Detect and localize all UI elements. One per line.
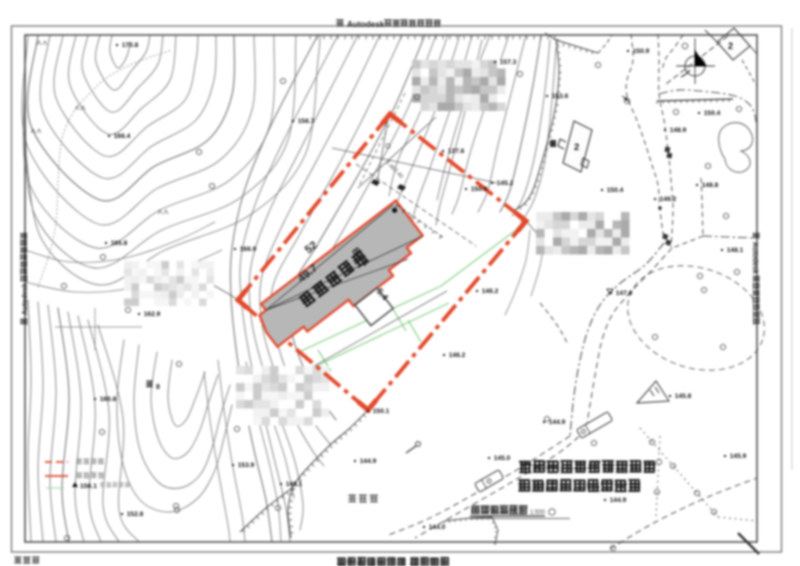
svg-text:153.6: 153.6: [552, 93, 569, 100]
svg-text:156.1: 156.1: [80, 483, 97, 490]
svg-text:148.1: 148.1: [727, 247, 744, 254]
svg-text:148.1: 148.1: [286, 481, 303, 488]
svg-text:150.4: 150.4: [704, 110, 721, 117]
svg-text:145.0: 145.0: [494, 455, 511, 462]
svg-text:8: 8: [156, 384, 160, 391]
svg-text:137.6: 137.6: [448, 148, 465, 155]
svg-text:157.3: 157.3: [500, 59, 517, 66]
svg-text:144.9: 144.9: [610, 497, 627, 504]
svg-text:150.1: 150.1: [373, 408, 390, 415]
svg-text:144.0: 144.0: [429, 524, 446, 531]
svg-text:145.8: 145.8: [675, 393, 692, 400]
svg-text:165.8: 165.8: [111, 240, 128, 247]
svg-text:144.9: 144.9: [360, 458, 377, 465]
svg-text:153.9: 153.9: [238, 462, 255, 469]
svg-text:144.9: 144.9: [549, 419, 566, 426]
svg-text:150.9: 150.9: [633, 48, 650, 55]
svg-text:156.7: 156.7: [298, 118, 315, 125]
svg-text:146.2: 146.2: [449, 352, 466, 359]
svg-text:166.9: 166.9: [240, 246, 257, 253]
svg-text:Autodesk: Autodesk: [751, 242, 758, 274]
svg-text:147.0: 147.0: [616, 290, 633, 297]
svg-text:1:500: 1:500: [530, 510, 546, 516]
svg-text:2: 2: [728, 41, 733, 51]
svg-text:150.6: 150.6: [471, 186, 488, 193]
svg-text:148.9: 148.9: [670, 127, 687, 134]
svg-text:150.4: 150.4: [607, 187, 624, 194]
svg-text:146.2: 146.2: [660, 196, 677, 203]
svg-text:2: 2: [574, 142, 579, 153]
svg-text:170.8: 170.8: [122, 42, 139, 49]
svg-text:152.8: 152.8: [127, 511, 144, 518]
svg-text:Autodesk: Autodesk: [347, 20, 385, 29]
svg-text:146.2: 146.2: [482, 288, 499, 295]
svg-text:166.4: 166.4: [114, 133, 131, 140]
svg-text:162.9: 162.9: [144, 311, 161, 318]
svg-text:145.9: 145.9: [730, 453, 747, 460]
svg-text:145.2: 145.2: [497, 180, 514, 187]
svg-text:160.8: 160.8: [100, 396, 117, 403]
svg-text:Autodesk: Autodesk: [22, 283, 29, 315]
svg-text:148.8: 148.8: [702, 182, 719, 189]
